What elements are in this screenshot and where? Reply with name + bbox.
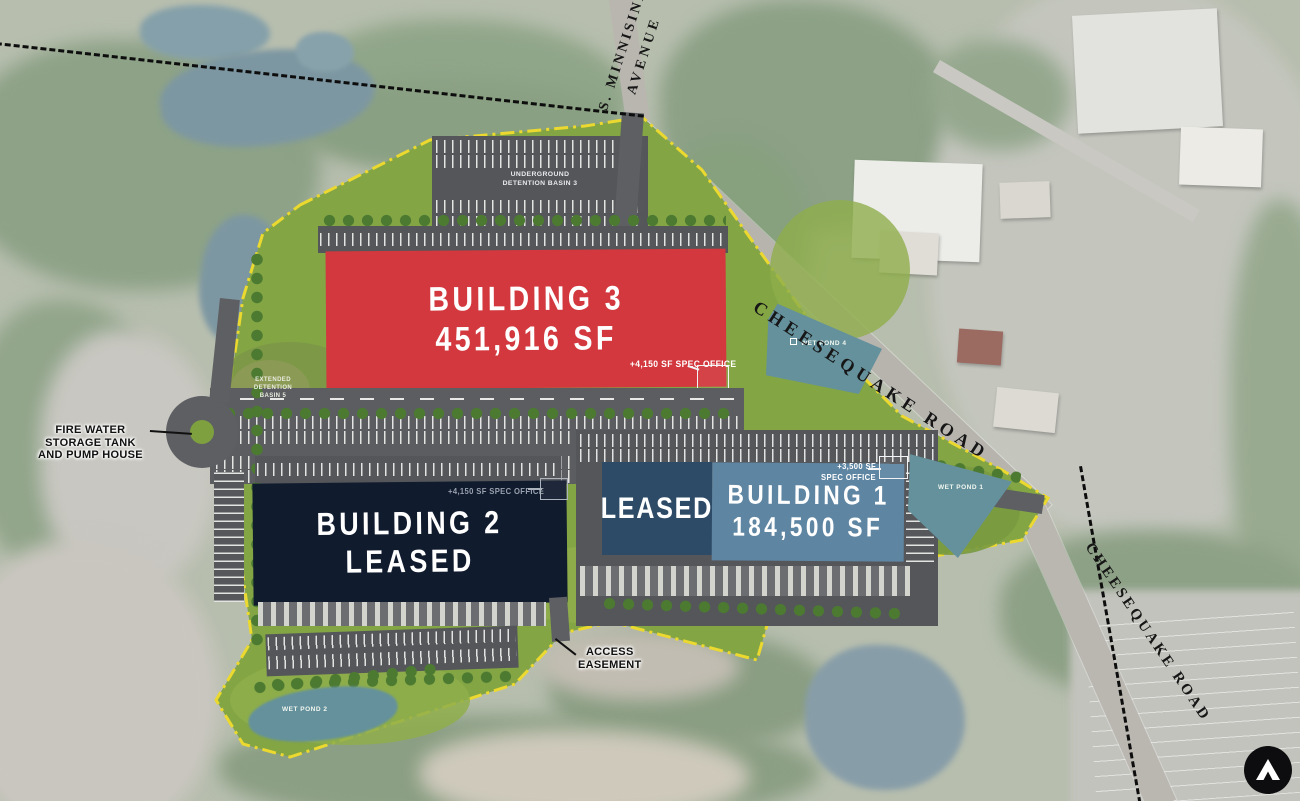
building-1-spec-leader xyxy=(868,468,881,470)
access-easement-callout: ACCESS EASEMENT xyxy=(578,646,642,671)
building-1-leased-label: LEASED xyxy=(601,492,713,525)
wet-pond-2-label: WET POND 2 xyxy=(282,706,327,713)
building-1-title: BUILDING 1 xyxy=(727,480,889,511)
building-2-spec-office-box xyxy=(540,478,568,500)
building-2-spec-leader xyxy=(528,488,542,490)
site-plan-map: UNDERGROUND DETENTION BASIN 3 BUILDING 3… xyxy=(0,0,1300,801)
building-2: BUILDING 2 LEASED xyxy=(252,480,567,605)
building-2-status: LEASED xyxy=(345,542,475,579)
tree-row-above-building3 xyxy=(320,212,726,229)
building2-north-parking xyxy=(255,456,561,483)
building-1-size: 184,500 SF xyxy=(732,511,883,542)
extended-detention-basin-label: EXTENDED DETENTION BASIN 5 xyxy=(238,376,308,400)
building-2-title: BUILDING 2 xyxy=(317,504,503,542)
tree-row-central xyxy=(220,405,730,422)
access-easement-road xyxy=(549,597,570,642)
wet-pond-1-label: WET POND 1 xyxy=(938,484,983,491)
building-1-spec-office-box xyxy=(879,456,908,479)
logo-badge[interactable] xyxy=(1244,746,1292,794)
roundabout-island xyxy=(190,420,214,444)
west-parking-column xyxy=(214,472,244,602)
building-1-leased-section: LEASED xyxy=(602,462,712,555)
north-arrow-chevron-icon xyxy=(1253,757,1283,783)
fire-water-callout: FIRE WATER STORAGE TANK AND PUMP HOUSE xyxy=(38,424,143,462)
building-1-spec-office-note: +3,500 SF SPEC OFFICE xyxy=(799,461,876,483)
building-3-title: BUILDING 3 xyxy=(428,279,624,318)
building2-trailer-court xyxy=(258,602,546,626)
building-3-size: 451,916 SF xyxy=(435,319,617,358)
underground-detention-basin-label: UNDERGROUND DETENTION BASIN 3 xyxy=(432,170,648,188)
